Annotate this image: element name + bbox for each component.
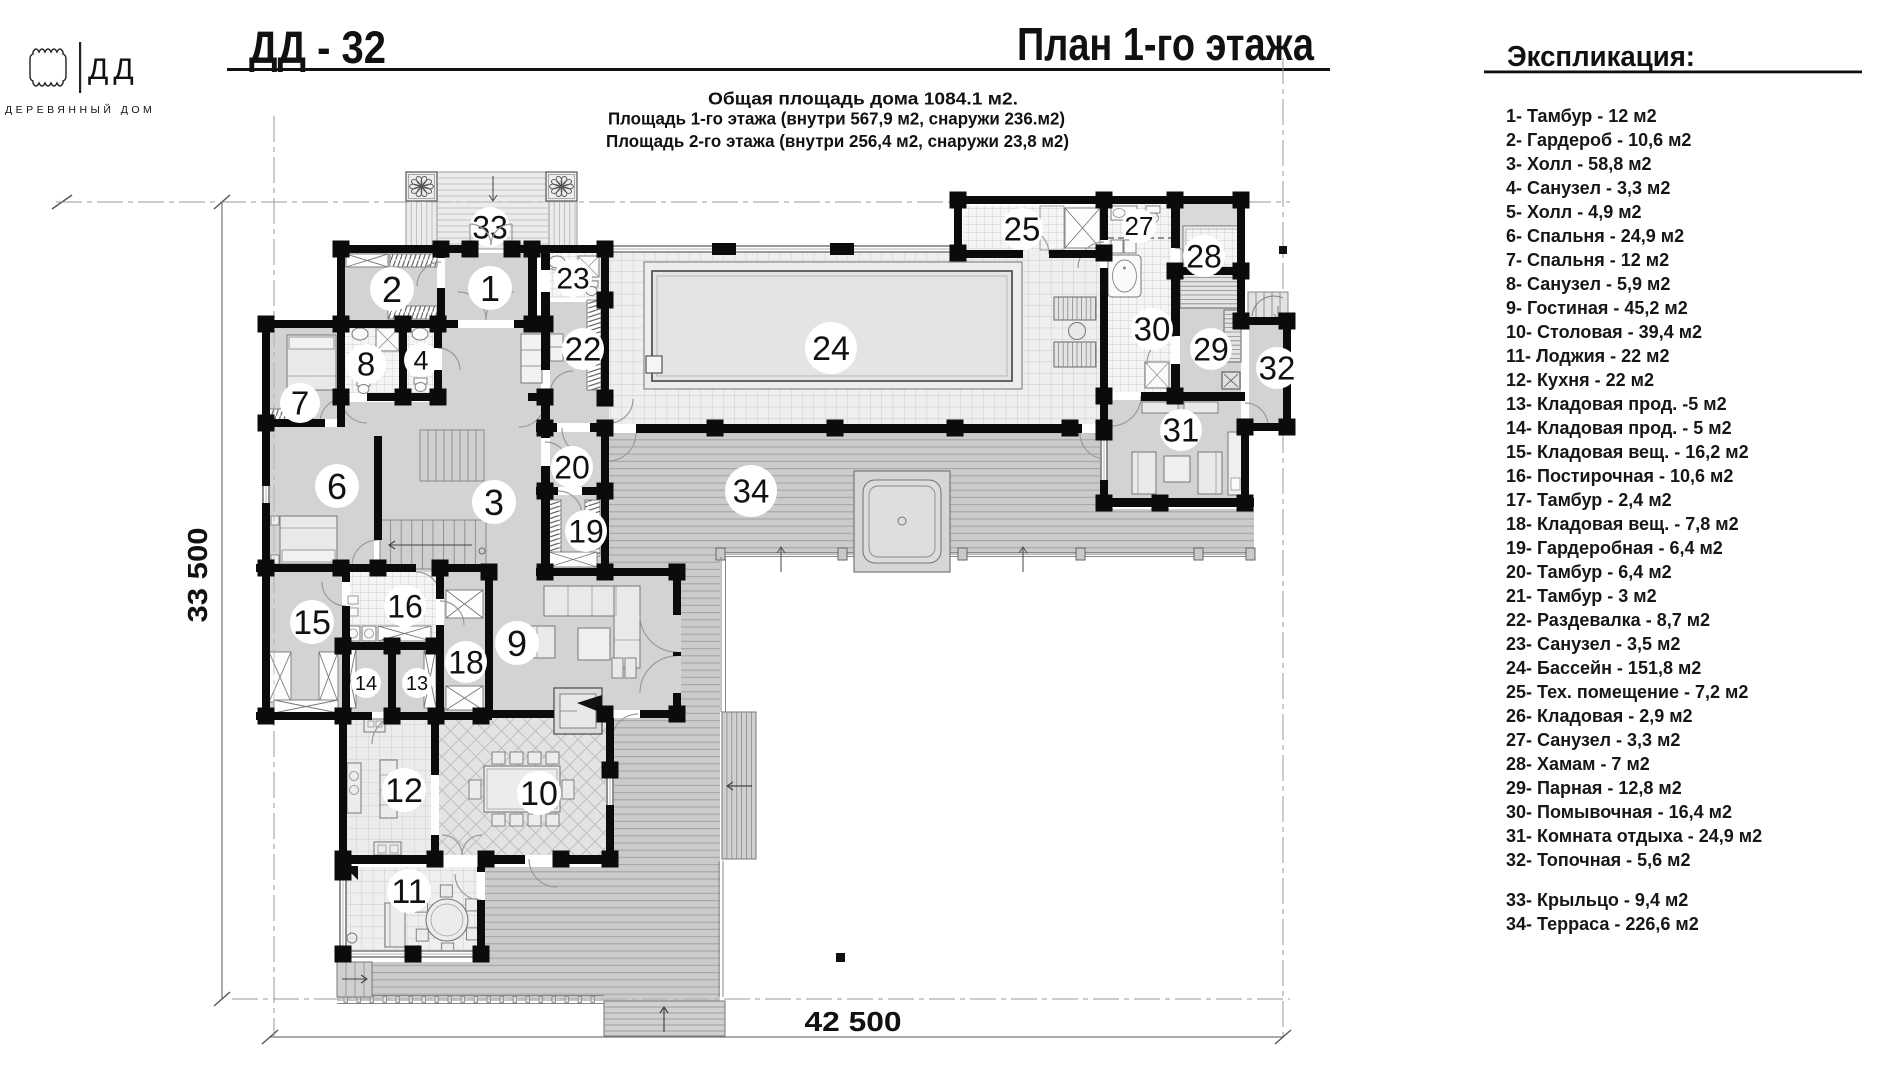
svg-text:Площадь 2-го этажа (внутри 256: Площадь 2-го этажа (внутри 256,4 м2, сна… bbox=[606, 131, 1069, 151]
svg-text:2: 2 bbox=[382, 269, 402, 310]
svg-text:14: 14 bbox=[355, 673, 377, 695]
svg-text:42 500: 42 500 bbox=[805, 1006, 902, 1037]
svg-text:ДД: ДД bbox=[88, 53, 139, 86]
svg-text:14- Кладовая прод. - 5 м2: 14- Кладовая прод. - 5 м2 bbox=[1506, 418, 1732, 438]
svg-text:11: 11 bbox=[391, 873, 426, 911]
svg-text:9- Гостиная - 45,2 м2: 9- Гостиная - 45,2 м2 bbox=[1506, 298, 1688, 318]
svg-text:Площадь 1-го этажа (внутри 567: Площадь 1-го этажа (внутри 567,9 м2, сна… bbox=[608, 109, 1065, 129]
svg-text:29- Парная - 12,8 м2: 29- Парная - 12,8 м2 bbox=[1506, 778, 1682, 798]
svg-text:1: 1 bbox=[480, 268, 500, 309]
svg-text:23- Санузел - 3,5 м2: 23- Санузел - 3,5 м2 bbox=[1506, 634, 1680, 654]
svg-text:18- Кладовая вещ. - 7,8 м2: 18- Кладовая вещ. - 7,8 м2 bbox=[1506, 514, 1739, 534]
svg-text:32- Топочная - 5,6 м2: 32- Топочная - 5,6 м2 bbox=[1506, 850, 1690, 870]
svg-text:ДЕРЕВЯННЫЙ ДОМ: ДЕРЕВЯННЫЙ ДОМ bbox=[5, 103, 155, 116]
svg-text:16: 16 bbox=[387, 588, 423, 624]
svg-text:9: 9 bbox=[507, 623, 527, 664]
svg-text:31- Комната отдыха - 24,9 м2: 31- Комната отдыха - 24,9 м2 bbox=[1506, 826, 1762, 846]
svg-text:ДД - 32: ДД - 32 bbox=[249, 22, 386, 73]
svg-text:33- Крыльцо - 9,4 м2: 33- Крыльцо - 9,4 м2 bbox=[1506, 890, 1688, 910]
svg-text:32: 32 bbox=[1259, 350, 1296, 387]
svg-text:27: 27 bbox=[1125, 211, 1154, 241]
svg-text:30- Помывочная - 16,4 м2: 30- Помывочная - 16,4 м2 bbox=[1506, 802, 1732, 822]
svg-text:10: 10 bbox=[520, 775, 558, 813]
svg-text:19- Гардеробная - 6,4 м2: 19- Гардеробная - 6,4 м2 bbox=[1506, 538, 1723, 558]
svg-text:10- Столовая - 39,4 м2: 10- Столовая - 39,4 м2 bbox=[1506, 322, 1702, 342]
svg-text:12- Кухня - 22 м2: 12- Кухня - 22 м2 bbox=[1506, 370, 1654, 390]
svg-text:30: 30 bbox=[1134, 311, 1171, 348]
svg-text:16- Постирочная - 10,6 м2: 16- Постирочная - 10,6 м2 bbox=[1506, 466, 1733, 486]
svg-text:7- Спальня - 12 м2: 7- Спальня - 12 м2 bbox=[1506, 250, 1669, 270]
svg-text:19: 19 bbox=[568, 513, 604, 549]
svg-text:18: 18 bbox=[448, 644, 484, 680]
svg-text:24: 24 bbox=[812, 330, 850, 368]
svg-text:17- Тамбур - 2,4 м2: 17- Тамбур - 2,4 м2 bbox=[1506, 490, 1672, 510]
svg-text:4: 4 bbox=[413, 346, 428, 376]
svg-text:Экспликация:: Экспликация: bbox=[1507, 41, 1695, 73]
svg-text:34: 34 bbox=[733, 473, 770, 510]
svg-text:13- Кладовая прод. -5 м2: 13- Кладовая прод. -5 м2 bbox=[1506, 394, 1727, 414]
svg-text:25: 25 bbox=[1004, 211, 1041, 248]
svg-text:28- Хамам - 7 м2: 28- Хамам - 7 м2 bbox=[1506, 754, 1650, 774]
svg-text:25- Тех. помещение - 7,2 м2: 25- Тех. помещение - 7,2 м2 bbox=[1506, 682, 1748, 702]
svg-text:20- Тамбур - 6,4 м2: 20- Тамбур - 6,4 м2 bbox=[1506, 562, 1672, 582]
svg-text:22: 22 bbox=[565, 331, 602, 368]
svg-text:26- Кладовая - 2,9 м2: 26- Кладовая - 2,9 м2 bbox=[1506, 706, 1693, 726]
svg-text:4- Санузел - 3,3 м2: 4- Санузел - 3,3 м2 bbox=[1506, 178, 1670, 198]
svg-text:22- Раздевалка - 8,7 м2: 22- Раздевалка - 8,7 м2 bbox=[1506, 610, 1710, 630]
svg-text:6- Спальня - 24,9 м2: 6- Спальня - 24,9 м2 bbox=[1506, 226, 1684, 246]
svg-text:2- Гардероб - 10,6 м2: 2- Гардероб - 10,6 м2 bbox=[1506, 130, 1691, 150]
svg-text:21- Тамбур - 3 м2: 21- Тамбур - 3 м2 bbox=[1506, 586, 1657, 606]
svg-text:3- Холл - 58,8 м2: 3- Холл - 58,8 м2 bbox=[1506, 154, 1652, 174]
svg-text:Общая площадь дома 1084.1 м2.: Общая площадь дома 1084.1 м2. bbox=[708, 89, 1018, 109]
svg-text:7: 7 bbox=[291, 385, 309, 422]
svg-text:15- Кладовая вещ. - 16,2 м2: 15- Кладовая вещ. - 16,2 м2 bbox=[1506, 442, 1749, 462]
svg-text:8: 8 bbox=[357, 346, 375, 383]
svg-text:24- Бассейн - 151,8 м2: 24- Бассейн - 151,8 м2 bbox=[1506, 658, 1701, 678]
svg-text:34- Терраса - 226,6 м2: 34- Терраса - 226,6 м2 bbox=[1506, 914, 1699, 934]
svg-text:33 500: 33 500 bbox=[182, 528, 213, 623]
svg-text:12: 12 bbox=[385, 772, 423, 810]
svg-text:5- Холл - 4,9 м2: 5- Холл - 4,9 м2 bbox=[1506, 202, 1642, 222]
svg-text:11- Лоджия - 22 м2: 11- Лоджия - 22 м2 bbox=[1506, 346, 1670, 366]
svg-text:20: 20 bbox=[554, 449, 590, 485]
svg-text:8- Санузел - 5,9 м2: 8- Санузел - 5,9 м2 bbox=[1506, 274, 1670, 294]
svg-text:15: 15 bbox=[293, 604, 331, 642]
svg-text:3: 3 bbox=[484, 482, 504, 523]
svg-text:План 1-го этажа: План 1-го этажа bbox=[1017, 18, 1314, 70]
svg-text:23: 23 bbox=[556, 263, 589, 296]
svg-text:13: 13 bbox=[406, 673, 428, 695]
svg-text:28: 28 bbox=[1186, 238, 1222, 274]
svg-text:31: 31 bbox=[1163, 412, 1200, 449]
svg-text:27- Санузел - 3,3 м2: 27- Санузел - 3,3 м2 bbox=[1506, 730, 1680, 750]
svg-text:6: 6 bbox=[327, 466, 347, 507]
svg-text:29: 29 bbox=[1193, 331, 1229, 367]
svg-text:1- Тамбур - 12 м2: 1- Тамбур - 12 м2 bbox=[1506, 106, 1657, 126]
